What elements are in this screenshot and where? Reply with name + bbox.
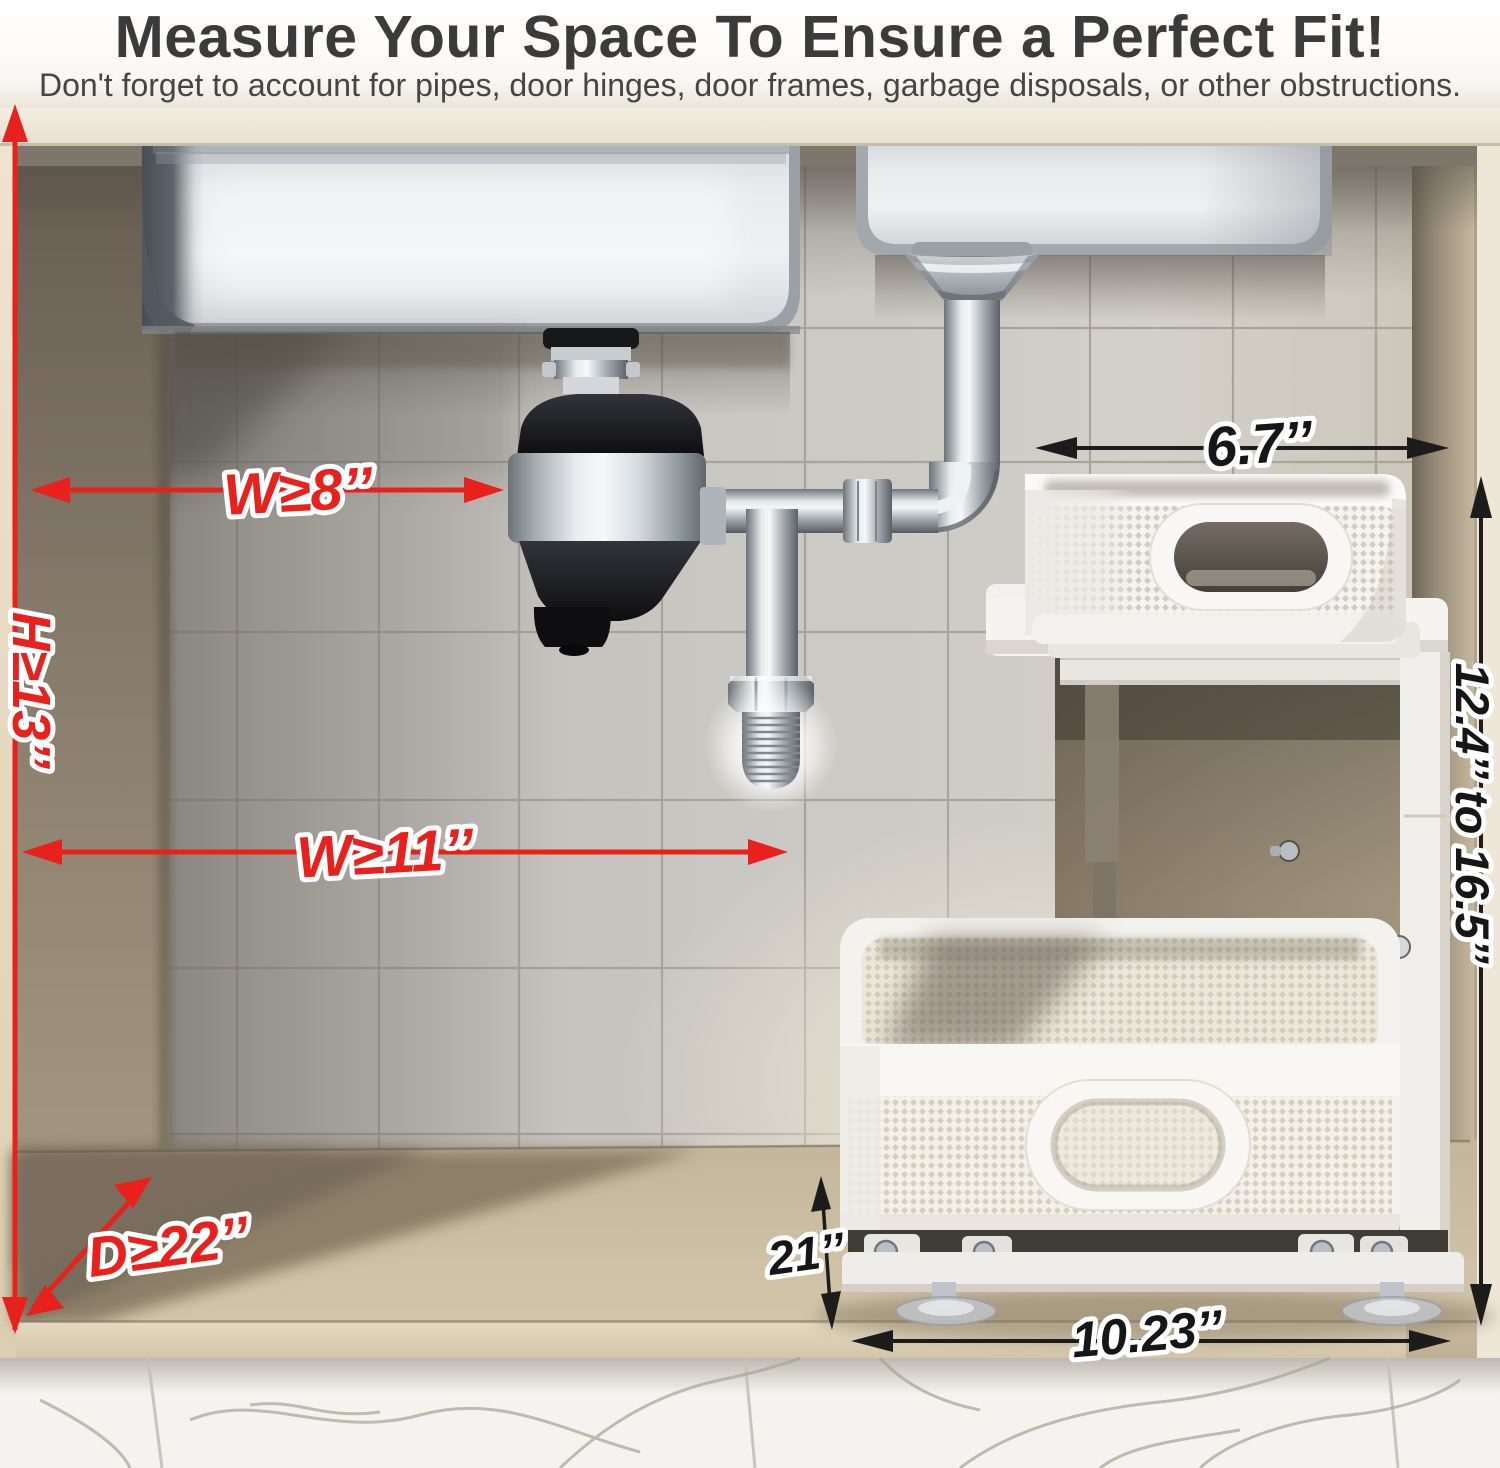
svg-text:W≥11’’: W≥11’’ [295,816,476,890]
svg-text:H≥13’’: H≥13’’ [1,612,61,770]
svg-text:W≥8’’: W≥8’’ [222,455,375,528]
svg-text:12.4’’ to 16.5’’: 12.4’’ to 16.5’’ [1446,663,1499,964]
svg-text:21’’: 21’’ [764,1222,849,1285]
svg-text:6.7’’: 6.7’’ [1203,408,1315,478]
